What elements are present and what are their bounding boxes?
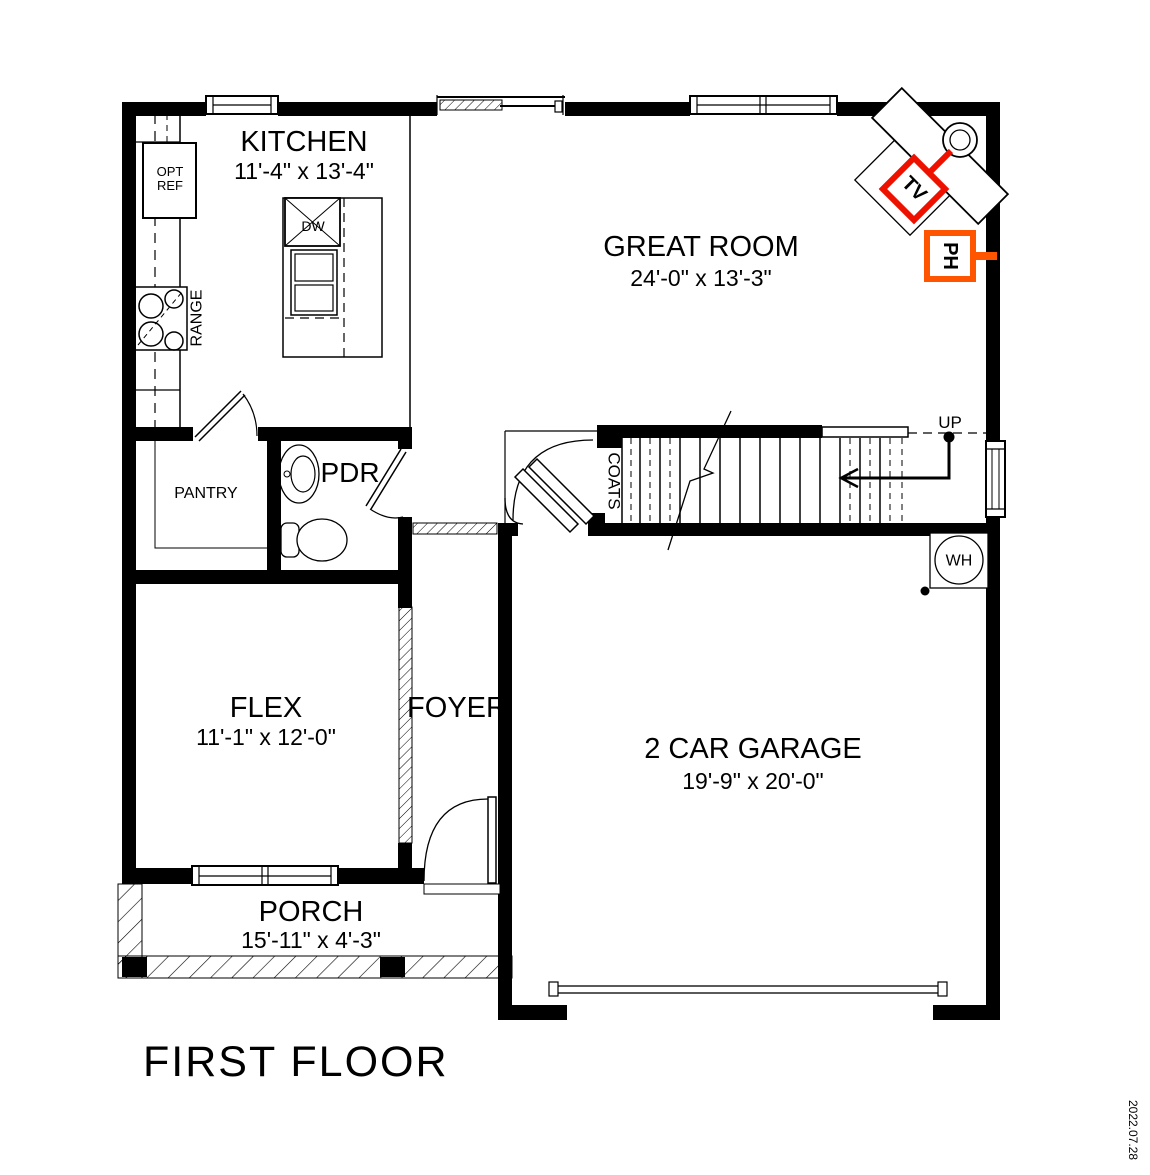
floor-plan-drawing: TV PH WH KITCHEN 11'-4" x 13'-4" GREAT R… bbox=[0, 0, 1150, 1170]
pantry-name: PANTRY bbox=[174, 485, 238, 502]
floor-plan-page: TV PH WH KITCHEN 11'-4" x 13'-4" GREAT R… bbox=[0, 0, 1150, 1170]
garage-dims: 19'-9" x 20'-0" bbox=[682, 768, 823, 794]
pdr-sink bbox=[279, 445, 319, 503]
pdr-toilet bbox=[281, 519, 347, 561]
coats-label: COATS bbox=[605, 452, 624, 509]
great-room-dims: 24'-0" x 13'-3" bbox=[630, 265, 771, 291]
stair-railing bbox=[822, 427, 908, 437]
kitchen-dims: 11'-4" x 13'-4" bbox=[234, 158, 374, 184]
porch-name: PORCH bbox=[259, 896, 364, 928]
great-room-sliding-door bbox=[437, 95, 565, 115]
up-label: UP bbox=[938, 413, 962, 432]
flex-dims: 11'-1" x 12'-0" bbox=[196, 724, 336, 750]
water-heater: WH bbox=[921, 533, 989, 596]
foyer-name: FOYER bbox=[407, 692, 507, 724]
flex-name: FLEX bbox=[230, 692, 303, 724]
flex-double-window bbox=[192, 866, 338, 885]
porch-post bbox=[122, 957, 147, 977]
opt-label: OPT bbox=[157, 164, 184, 179]
ph-label: PH bbox=[939, 242, 961, 270]
porch-post bbox=[380, 957, 405, 977]
wh-label: WH bbox=[946, 553, 973, 570]
garage-name: 2 CAR GARAGE bbox=[644, 733, 862, 765]
kitchen-window bbox=[206, 96, 278, 114]
kitchen-island bbox=[283, 198, 382, 357]
revision-date: 2022.07.28 bbox=[1126, 1100, 1140, 1160]
range-label: RANGE bbox=[189, 290, 206, 347]
stair-landing-window bbox=[986, 441, 1005, 517]
flex-foyer-cased-opening bbox=[399, 607, 412, 843]
great-room-double-window bbox=[690, 96, 837, 114]
great-room-name: GREAT ROOM bbox=[603, 231, 799, 263]
hall-foyer-cased-opening bbox=[413, 523, 497, 534]
kitchen-name: KITCHEN bbox=[240, 126, 367, 158]
pdr-name: PDR bbox=[320, 457, 379, 488]
sheet-title: FIRST FLOOR bbox=[143, 1038, 449, 1086]
range-cooktop bbox=[133, 287, 187, 350]
ref-label: REF bbox=[157, 178, 183, 193]
porch-dims: 15'-11" x 4'-3" bbox=[241, 927, 381, 953]
dw-label: DW bbox=[301, 218, 325, 234]
